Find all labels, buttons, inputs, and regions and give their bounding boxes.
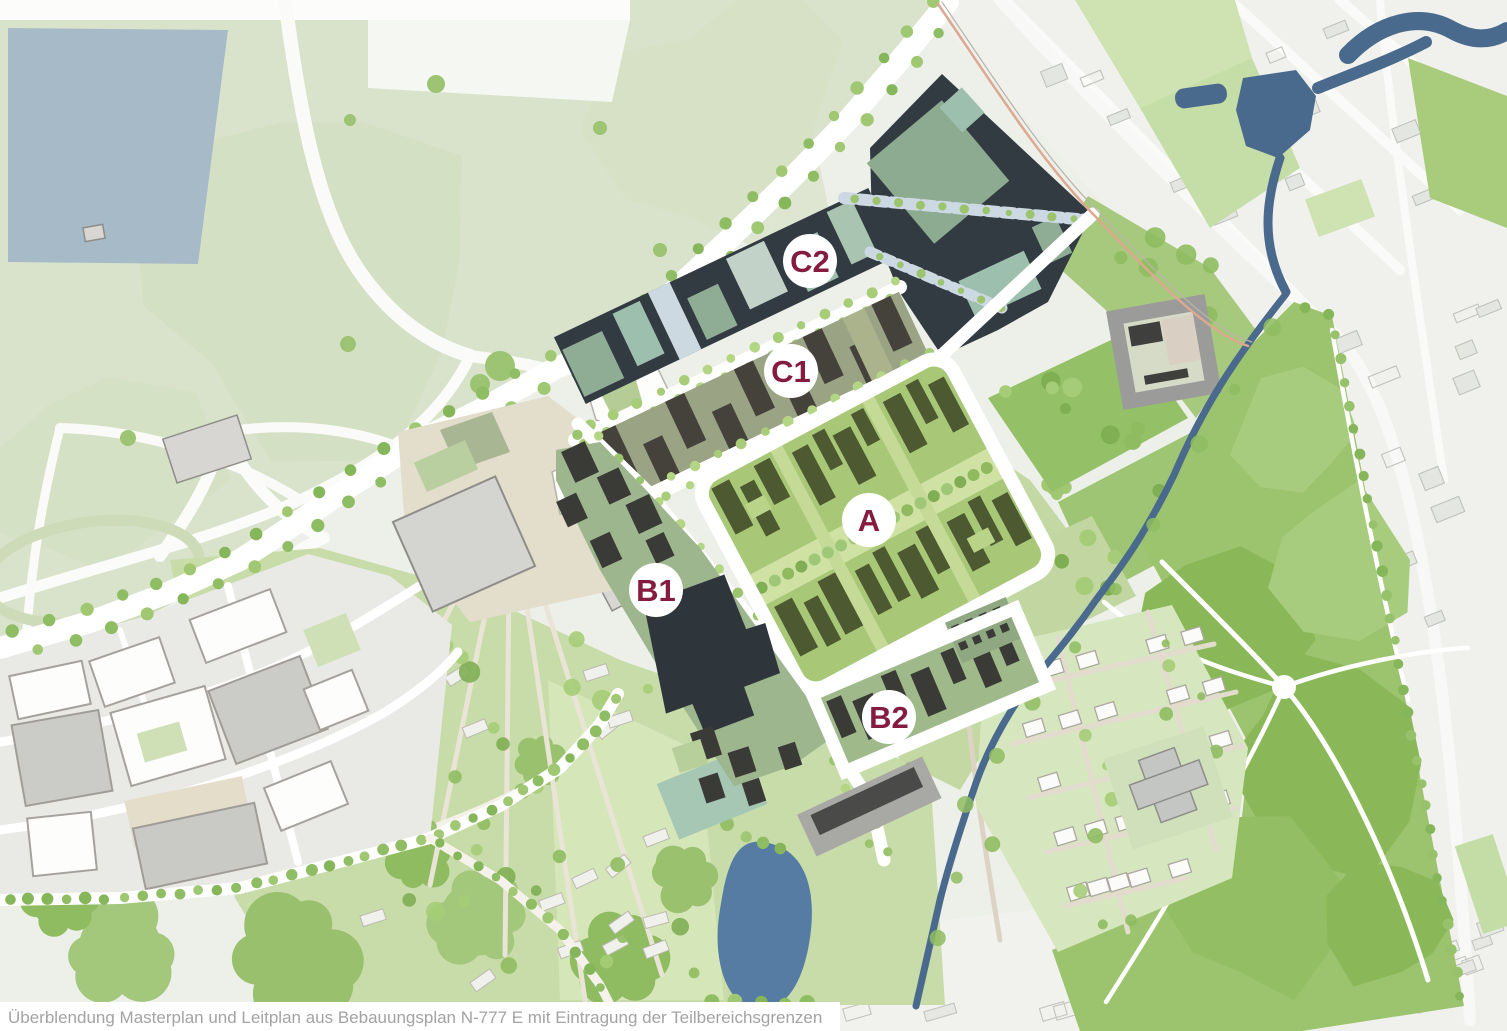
svg-text:B1: B1 bbox=[636, 573, 676, 608]
svg-text:C2: C2 bbox=[790, 244, 830, 279]
svg-text:A: A bbox=[858, 503, 880, 538]
svg-text:B2: B2 bbox=[869, 700, 909, 735]
svg-text:Überblendung Masterplan und Le: Überblendung Masterplan und Leitplan aus… bbox=[8, 1008, 822, 1027]
svg-text:C1: C1 bbox=[771, 354, 811, 389]
